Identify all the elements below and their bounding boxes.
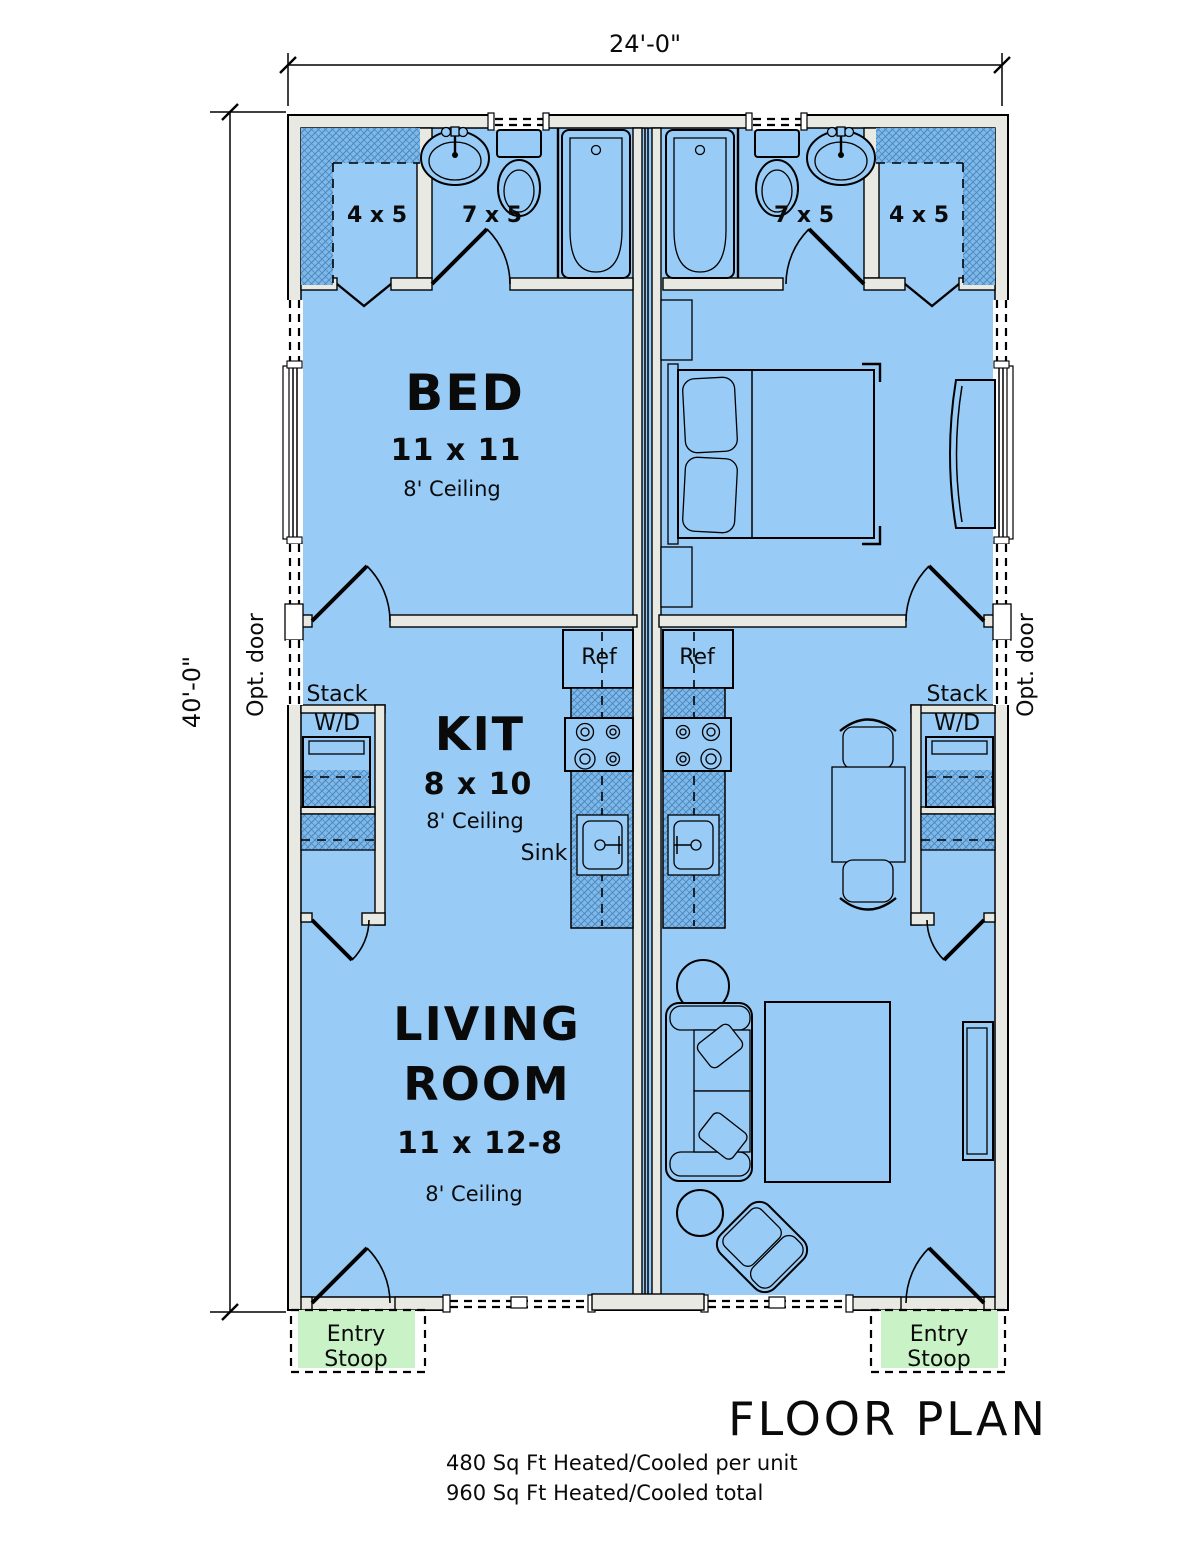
- kitchen-name: KIT: [435, 707, 525, 761]
- ref-label-right: Ref: [679, 645, 716, 670]
- note-per-unit: 480 Sq Ft Heated/Cooled per unit: [446, 1451, 798, 1475]
- entry-label-left: Entry: [327, 1322, 386, 1347]
- living-size: 11 x 12-8: [397, 1126, 563, 1161]
- wd-label-right: W/D: [934, 711, 980, 736]
- window-left-bedroom: [283, 361, 303, 544]
- opt-door-label-left: Opt. door: [244, 612, 269, 717]
- bed-room-name: BED: [405, 364, 525, 422]
- entry-stoop-right: Entry Stoop: [871, 1310, 1005, 1372]
- kitchen-sink-icon-right: [668, 815, 719, 875]
- entry-label-right: Entry: [910, 1322, 969, 1347]
- bottom-window-right: [701, 1295, 853, 1312]
- range-icon-right: [663, 718, 731, 771]
- wd-label-left: W/D: [314, 711, 360, 736]
- dimension-left: 40'-0": [178, 104, 286, 1320]
- sofa-icon: [666, 1003, 752, 1181]
- kitchen-size: 8 x 10: [424, 767, 533, 802]
- floor-plan-canvas: 24'-0" 40'-0": [0, 0, 1200, 1558]
- kitchen-right: [663, 630, 733, 928]
- dining-chair-bottom: [843, 860, 893, 902]
- bath-right-size-label: 7 x 5: [774, 203, 834, 228]
- sink-label: Sink: [521, 841, 568, 866]
- bathtub-icon-right: [666, 130, 734, 278]
- dimension-height-label: 40'-0": [178, 656, 206, 728]
- bed-room-ceiling: 8' Ceiling: [403, 477, 501, 501]
- bed-icon: [668, 364, 880, 544]
- stack-label-left: Stack: [307, 682, 368, 707]
- living-ceiling: 8' Ceiling: [425, 1182, 523, 1206]
- ref-label-left: Ref: [581, 645, 618, 670]
- tv-icon: [963, 1022, 993, 1160]
- stoop-label-right: Stoop: [907, 1347, 970, 1372]
- kitchen-ceiling: 8' Ceiling: [426, 809, 524, 833]
- dimension-top: 24'-0": [280, 30, 1010, 106]
- nightstand-bottom: [661, 547, 692, 607]
- note-total: 960 Sq Ft Heated/Cooled total: [446, 1481, 763, 1505]
- living-name-line1: LIVING: [393, 997, 580, 1051]
- page-title: FLOOR PLAN: [728, 1392, 1048, 1446]
- range-icon-left: [565, 718, 633, 771]
- stack-label-right: Stack: [927, 682, 988, 707]
- living-name-line2: ROOM: [403, 1057, 570, 1111]
- dimension-width-label: 24'-0": [609, 30, 681, 58]
- area-rug: [765, 1002, 890, 1182]
- dining-table: [832, 767, 905, 862]
- bottom-window-left: [443, 1295, 595, 1312]
- party-wall-footing: [592, 1294, 704, 1310]
- left-wall-openings: [283, 300, 303, 705]
- kitchen-sink-icon-left: [577, 815, 628, 875]
- dining-chair-top: [843, 727, 893, 769]
- bath-left-size-label: 7 x 5: [462, 203, 522, 228]
- floor-plan-page: 24'-0" 40'-0": [0, 0, 1200, 1558]
- top-window-left: [488, 113, 549, 130]
- closet-left-size-label: 4 x 5: [347, 203, 407, 228]
- entry-stoop-left: Entry Stoop: [291, 1310, 425, 1372]
- bed-room-size: 11 x 11: [391, 433, 522, 468]
- closet-shelf-left: [301, 814, 375, 850]
- bathtub-icon-left: [562, 130, 630, 278]
- end-table-bottom: [677, 1190, 723, 1236]
- opt-door-label-right: Opt. door: [1014, 612, 1039, 717]
- top-window-right: [746, 113, 807, 130]
- nightstand-top: [661, 300, 692, 360]
- closet-shelf-right: [921, 814, 995, 850]
- closet-right-size-label: 4 x 5: [889, 203, 949, 228]
- title-block: FLOOR PLAN 480 Sq Ft Heated/Cooled per u…: [446, 1392, 1048, 1505]
- stoop-label-left: Stoop: [324, 1347, 387, 1372]
- kitchen-left: [563, 630, 633, 928]
